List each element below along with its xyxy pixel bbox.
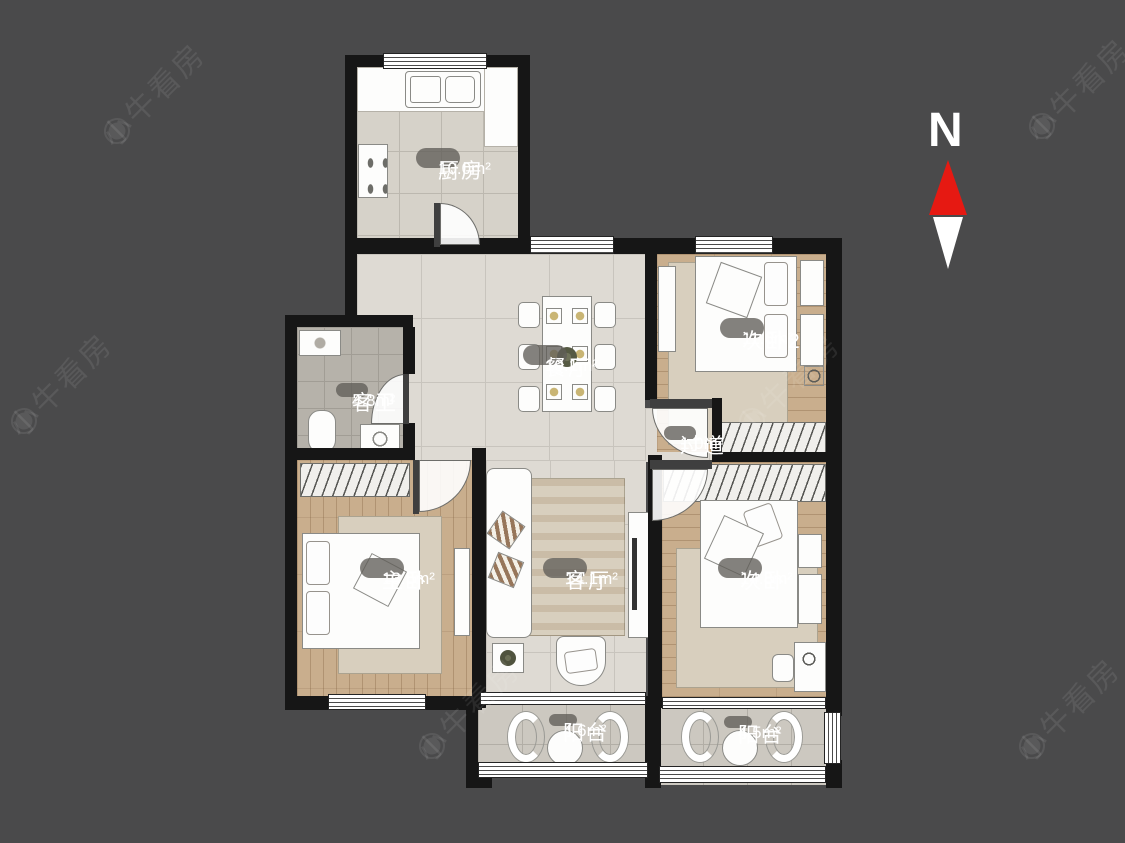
bathroom-sink (299, 330, 341, 356)
armchair-pillow (564, 648, 599, 674)
bedroom1-nightstand (798, 534, 822, 568)
wall (826, 760, 842, 788)
window (695, 236, 773, 254)
sofa (486, 468, 532, 638)
north-label: N (928, 103, 963, 158)
kitchen-label: 厨房 10.0m² (416, 148, 460, 168)
placemat (546, 384, 562, 400)
wall (403, 423, 415, 460)
room-area: 1.0m² (680, 433, 723, 455)
window (530, 236, 614, 254)
desk-lamp (800, 650, 818, 668)
watermark-text: 小牛看房 (89, 31, 213, 155)
master-wardrobe (300, 463, 410, 497)
bedroom2-door (650, 399, 712, 408)
living-label: 客厅 14.1m² (543, 558, 587, 578)
bedroom1-label: 次卧 14.8m² (718, 558, 762, 578)
kitchen-door (434, 203, 440, 247)
room-area: 14.8m² (740, 568, 793, 590)
balcony-chair (682, 712, 718, 762)
room-area: 19.1m² (545, 355, 598, 377)
wall (345, 55, 357, 327)
master-door (413, 460, 419, 514)
balcony-chair (508, 712, 544, 762)
master-tv-bench (454, 548, 470, 636)
watermark-text: 小牛看房 (0, 321, 121, 445)
wall (285, 448, 415, 460)
wall (285, 327, 297, 708)
window (328, 694, 426, 710)
room-area: 4.6m² (563, 720, 606, 742)
balcony-left-label: 阳台 4.6m² (549, 714, 577, 726)
placemat (572, 308, 588, 324)
kitchen-counter-right (484, 67, 518, 147)
bedroom2-pillow (764, 262, 788, 306)
balcony-slider-window (662, 697, 826, 709)
balcony-right-label: 阳台 4.5m² (724, 716, 752, 728)
bedroom1-door (650, 460, 712, 469)
bedroom2-label: 次卧2 11.6m² (720, 318, 764, 338)
kitchen-sink-basin-left (410, 76, 441, 103)
floorplan-image: 厨房 10.0m² 餐厅 19.1m² 次卧2 11.6m² 客卫 4.8m² … (0, 0, 1125, 843)
placemat (572, 384, 588, 400)
master-label: 主卧 13.5m² (360, 558, 404, 578)
master-pillow (306, 591, 330, 635)
bedroom1-nightstand (798, 574, 822, 624)
wall (712, 452, 826, 462)
room-area: 4.5m² (738, 722, 781, 744)
room-area: 11.6m² (742, 328, 794, 350)
bathroom-label: 客卫 4.8m² (336, 383, 368, 397)
wall (826, 254, 842, 708)
corridor-label: 过道 1.0m² (664, 426, 696, 440)
tv (632, 538, 637, 610)
wall (518, 55, 530, 238)
kitchen-sink-basin-right (445, 76, 475, 103)
room-area: 10.0m² (438, 158, 491, 180)
wall (645, 254, 657, 400)
bedroom2-shelf (658, 266, 676, 352)
dining-chair (594, 386, 616, 412)
window (383, 53, 487, 69)
wall (403, 327, 415, 374)
room-area: 4.8m² (352, 390, 395, 412)
window (659, 766, 826, 783)
desk-chair (772, 654, 794, 682)
watermark-text: 小牛看房 (1004, 646, 1125, 770)
window (478, 762, 648, 778)
room-area: 13.5m² (382, 568, 435, 590)
north-arrow-icon (929, 160, 967, 215)
master-pillow (306, 541, 330, 585)
window (824, 712, 841, 764)
bedroom2-nightstand (800, 260, 824, 306)
wall (285, 315, 413, 327)
south-arrow-icon (933, 217, 963, 269)
placemat (546, 308, 562, 324)
watermark-text: 小牛看房 (1014, 26, 1125, 150)
dining-chair (518, 386, 540, 412)
dining-chair (594, 302, 616, 328)
room-area: 14.1m² (565, 568, 618, 590)
dining-label: 餐厅 19.1m² (523, 345, 567, 365)
dining-chair (518, 302, 540, 328)
bathroom-door (403, 374, 409, 424)
stove (358, 144, 388, 198)
